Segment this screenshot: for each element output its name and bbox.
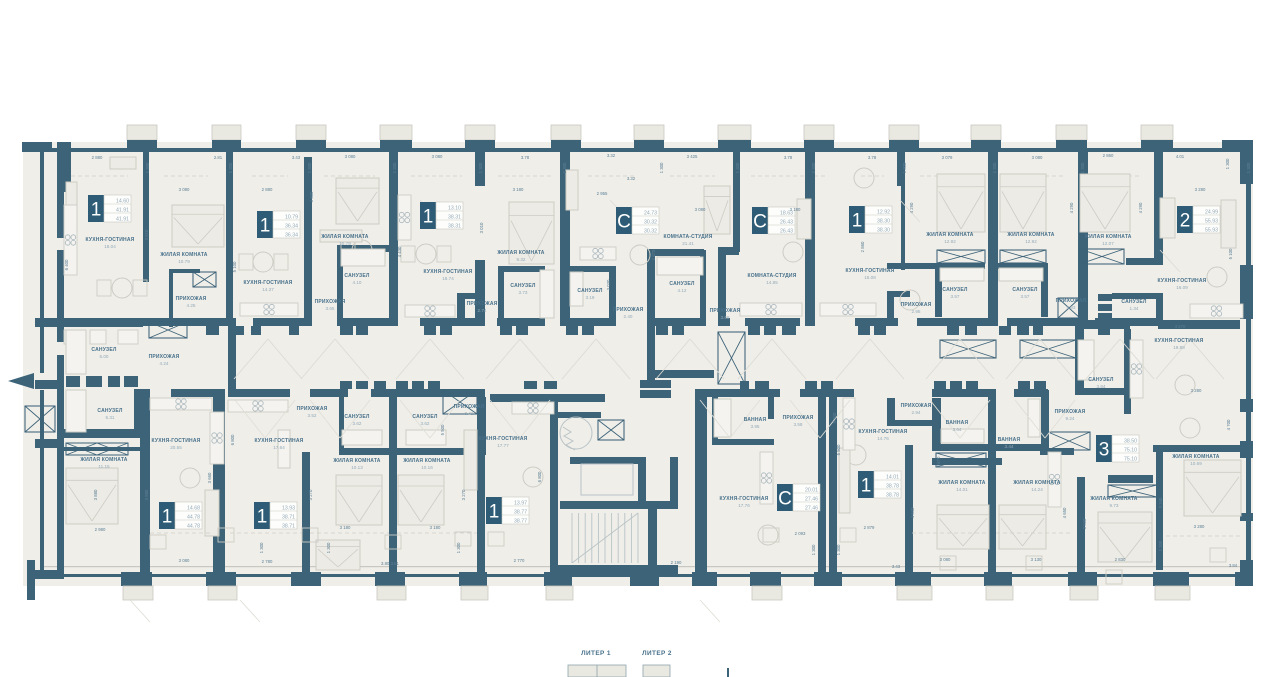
svg-text:3 080: 3 080 <box>1032 155 1043 160</box>
svg-text:ЖИЛАЯ КОМНАТА: ЖИЛАЯ КОМНАТА <box>1012 480 1060 486</box>
svg-text:1 300: 1 300 <box>659 162 664 173</box>
svg-text:3.68: 3.68 <box>721 315 730 320</box>
svg-text:ЖИЛАЯ КОМНАТА: ЖИЛАЯ КОМНАТА <box>332 458 380 464</box>
svg-text:4.01: 4.01 <box>1176 154 1185 159</box>
svg-text:1: 1 <box>861 476 872 497</box>
svg-text:2 980: 2 980 <box>95 527 106 532</box>
svg-text:2.81: 2.81 <box>214 155 223 160</box>
svg-text:1 300: 1 300 <box>456 542 461 553</box>
svg-text:2.94: 2.94 <box>912 410 921 415</box>
svg-text:5 500: 5 500 <box>440 424 445 435</box>
svg-text:2 780: 2 780 <box>262 559 273 564</box>
svg-text:4 290: 4 290 <box>909 202 914 213</box>
svg-text:КОМНАТА-СТУДИЯ: КОМНАТА-СТУДИЯ <box>663 234 712 240</box>
svg-text:13.97: 13.97 <box>514 500 527 506</box>
svg-text:3.44: 3.44 <box>1005 444 1014 449</box>
svg-text:4 270: 4 270 <box>1175 324 1186 329</box>
svg-text:24.99: 24.99 <box>1205 209 1218 215</box>
svg-text:С: С <box>753 212 767 233</box>
svg-text:18.74: 18.74 <box>442 276 454 281</box>
svg-text:3 080: 3 080 <box>345 154 356 159</box>
svg-text:1 300: 1 300 <box>326 542 331 553</box>
svg-text:3.78: 3.78 <box>784 155 793 160</box>
svg-text:5 500: 5 500 <box>832 412 837 423</box>
svg-text:36.34: 36.34 <box>285 223 298 229</box>
svg-text:41.91: 41.91 <box>116 207 129 213</box>
svg-text:3.62: 3.62 <box>421 421 430 426</box>
svg-text:2 770: 2 770 <box>514 558 525 563</box>
svg-text:20.55: 20.55 <box>170 445 182 450</box>
svg-text:38.71: 38.71 <box>282 514 295 520</box>
svg-text:САНУЗЕЛ: САНУЗЕЛ <box>669 281 694 287</box>
svg-text:2 880: 2 880 <box>92 155 103 160</box>
svg-text:19.88: 19.88 <box>1173 345 1185 350</box>
svg-text:36.34: 36.34 <box>285 232 298 238</box>
svg-text:САНУЗЕЛ: САНУЗЕЛ <box>344 414 369 420</box>
svg-text:ПРИХОЖАЯ: ПРИХОЖАЯ <box>149 354 180 360</box>
svg-text:2.95: 2.95 <box>912 309 921 314</box>
svg-text:КОМНАТА-СТУДИЯ: КОМНАТА-СТУДИЯ <box>747 273 796 279</box>
svg-text:2 879: 2 879 <box>864 525 875 530</box>
svg-text:3.73: 3.73 <box>519 290 528 295</box>
svg-text:3.32: 3.32 <box>627 176 636 181</box>
svg-text:27.46: 27.46 <box>805 505 818 511</box>
svg-text:ПРИХОЖАЯ: ПРИХОЖАЯ <box>1055 409 1086 415</box>
svg-text:3 080: 3 080 <box>940 557 951 562</box>
svg-text:38.77: 38.77 <box>514 509 527 515</box>
svg-text:2 955: 2 955 <box>597 191 608 196</box>
svg-text:3 010: 3 010 <box>479 222 484 233</box>
svg-text:ЖИЛАЯ КОМНАТА: ЖИЛАЯ КОМНАТА <box>320 234 368 240</box>
svg-text:3.41: 3.41 <box>465 411 474 416</box>
svg-text:3.57: 3.57 <box>1021 294 1030 299</box>
svg-text:5 100: 5 100 <box>232 261 237 272</box>
svg-text:1 300: 1 300 <box>811 544 816 555</box>
svg-text:3 080: 3 080 <box>695 207 706 212</box>
svg-text:1: 1 <box>852 211 863 232</box>
svg-text:1 300: 1 300 <box>562 162 567 173</box>
svg-text:ПРИХОЖАЯ: ПРИХОЖАЯ <box>710 308 741 314</box>
svg-text:КУХНЯ-ГОСТИНАЯ: КУХНЯ-ГОСТИНАЯ <box>152 438 201 444</box>
svg-text:3 880: 3 880 <box>93 489 98 500</box>
svg-text:САНУЗЕЛ: САНУЗЕЛ <box>1121 299 1146 305</box>
svg-text:4 650: 4 650 <box>1062 507 1067 518</box>
svg-text:1 300: 1 300 <box>392 162 397 173</box>
svg-text:ПРИХОЖАЯ: ПРИХОЖАЯ <box>467 301 498 307</box>
svg-text:14.60: 14.60 <box>116 198 129 204</box>
svg-text:3.65: 3.65 <box>326 306 335 311</box>
svg-text:ЖИЛАЯ КОМНАТА: ЖИЛАЯ КОМНАТА <box>937 480 985 486</box>
svg-text:1 300: 1 300 <box>478 162 483 173</box>
svg-text:38.30: 38.30 <box>877 218 890 224</box>
svg-text:11.15: 11.15 <box>98 464 110 469</box>
svg-text:12.92: 12.92 <box>877 209 890 215</box>
svg-text:1 300: 1 300 <box>145 162 150 173</box>
svg-text:КУХНЯ-ГОСТИНАЯ: КУХНЯ-ГОСТИНАЯ <box>846 268 895 274</box>
svg-text:3.58: 3.58 <box>794 422 803 427</box>
svg-text:3 280: 3 280 <box>1194 524 1205 529</box>
svg-text:21.41: 21.41 <box>682 241 694 246</box>
svg-text:САНУЗЕЛ: САНУЗЕЛ <box>91 347 116 353</box>
svg-text:ПРИХОЖАЯ: ПРИХОЖАЯ <box>613 307 644 313</box>
svg-text:С: С <box>617 212 631 233</box>
svg-text:3 180: 3 180 <box>790 207 801 212</box>
svg-text:14.76: 14.76 <box>877 436 889 441</box>
svg-text:3 530: 3 530 <box>1082 518 1087 529</box>
svg-text:КУХНЯ-ГОСТИНАЯ: КУХНЯ-ГОСТИНАЯ <box>424 269 473 275</box>
svg-text:6 400: 6 400 <box>64 259 69 270</box>
svg-text:30.32: 30.32 <box>644 228 657 234</box>
svg-text:38.77: 38.77 <box>514 518 527 524</box>
svg-text:2 670: 2 670 <box>651 249 656 260</box>
svg-text:55.93: 55.93 <box>1205 227 1218 233</box>
svg-text:ПРИХОЖАЯ: ПРИХОЖАЯ <box>901 302 932 308</box>
svg-text:3 130: 3 130 <box>1031 557 1042 562</box>
svg-text:1: 1 <box>423 207 434 228</box>
svg-text:4 700: 4 700 <box>1226 419 1231 430</box>
svg-text:КУХНЯ-ГОСТИНАЯ: КУХНЯ-ГОСТИНАЯ <box>479 436 528 442</box>
svg-text:3 280: 3 280 <box>1191 388 1202 393</box>
svg-text:3 080: 3 080 <box>432 154 443 159</box>
svg-text:1.34: 1.34 <box>1130 306 1139 311</box>
svg-text:КУХНЯ-ГОСТИНАЯ: КУХНЯ-ГОСТИНАЯ <box>1158 278 1207 284</box>
svg-text:1 300: 1 300 <box>735 162 740 173</box>
svg-text:ЛИТЕР 2: ЛИТЕР 2 <box>642 650 672 657</box>
svg-text:ЖИЛАЯ КОМНАТА: ЖИЛАЯ КОМНАТА <box>496 250 544 256</box>
svg-text:3 340: 3 340 <box>1158 497 1163 508</box>
svg-text:38.50: 38.50 <box>1124 438 1137 444</box>
svg-text:55.93: 55.93 <box>1205 218 1218 224</box>
svg-text:САНУЗЕЛ: САНУЗЕЛ <box>1012 287 1037 293</box>
svg-text:С: С <box>778 489 792 510</box>
svg-text:4.24: 4.24 <box>160 361 169 366</box>
svg-text:26.43: 26.43 <box>780 228 793 234</box>
svg-text:4 870: 4 870 <box>936 456 941 467</box>
svg-text:38.71: 38.71 <box>282 523 295 529</box>
svg-text:4 640: 4 640 <box>910 507 915 518</box>
svg-text:75.10: 75.10 <box>1124 447 1137 453</box>
svg-text:4.12: 4.12 <box>678 288 687 293</box>
svg-text:1: 1 <box>257 507 268 528</box>
svg-text:3 270: 3 270 <box>308 489 313 500</box>
svg-text:ПРИХОЖАЯ: ПРИХОЖАЯ <box>901 403 932 409</box>
svg-text:14.68: 14.68 <box>187 505 200 511</box>
svg-text:6 800: 6 800 <box>230 434 235 445</box>
svg-text:10.13: 10.13 <box>351 465 363 470</box>
svg-text:ПРИХОЖАЯ: ПРИХОЖАЯ <box>315 299 346 305</box>
svg-text:1 300: 1 300 <box>992 162 997 173</box>
svg-text:3.19: 3.19 <box>586 295 595 300</box>
svg-text:5.31: 5.31 <box>106 415 115 420</box>
svg-text:1 300: 1 300 <box>228 162 233 173</box>
svg-text:3.43: 3.43 <box>292 155 301 160</box>
svg-text:ВАННАЯ: ВАННАЯ <box>998 437 1021 443</box>
svg-text:12.07: 12.07 <box>1102 241 1114 246</box>
svg-text:1: 1 <box>91 200 102 221</box>
svg-text:1 300: 1 300 <box>1225 158 1230 169</box>
svg-text:3 600: 3 600 <box>309 191 314 202</box>
svg-text:3 180: 3 180 <box>430 525 441 530</box>
svg-text:1: 1 <box>162 507 173 528</box>
svg-text:3 030: 3 030 <box>606 279 611 290</box>
svg-text:38.78: 38.78 <box>886 492 899 498</box>
svg-text:14.01: 14.01 <box>956 487 968 492</box>
svg-text:14.37: 14.37 <box>262 287 274 292</box>
svg-text:3.95: 3.95 <box>751 424 760 429</box>
svg-text:3 270: 3 270 <box>461 489 466 500</box>
svg-text:3 080: 3 080 <box>179 187 190 192</box>
svg-text:ЖИЛАЯ КОМНАТА: ЖИЛАЯ КОМНАТА <box>1089 496 1137 502</box>
svg-text:3 180: 3 180 <box>340 525 351 530</box>
svg-text:5 500: 5 500 <box>836 444 841 455</box>
svg-text:9.24: 9.24 <box>1066 416 1075 421</box>
svg-text:ПРИХОЖАЯ: ПРИХОЖАЯ <box>783 415 814 421</box>
svg-text:ВАННАЯ: ВАННАЯ <box>744 417 767 423</box>
svg-text:24.73: 24.73 <box>644 210 657 216</box>
svg-text:2: 2 <box>1180 211 1191 232</box>
svg-text:3 880: 3 880 <box>144 489 149 500</box>
svg-text:3.64: 3.64 <box>953 427 962 432</box>
svg-text:1 300: 1 300 <box>307 162 312 173</box>
svg-text:3.43: 3.43 <box>892 564 901 569</box>
svg-text:2 093: 2 093 <box>795 531 806 536</box>
svg-text:1 300: 1 300 <box>1246 162 1251 173</box>
svg-text:4 290: 4 290 <box>1138 202 1143 213</box>
svg-text:18.04: 18.04 <box>104 244 116 249</box>
svg-text:3.80 3.81: 3.80 3.81 <box>381 561 400 566</box>
svg-text:3 079: 3 079 <box>942 155 953 160</box>
svg-text:2 860: 2 860 <box>1103 153 1114 158</box>
svg-text:ВАННАЯ: ВАННАЯ <box>946 420 969 426</box>
svg-text:3.52: 3.52 <box>308 413 317 418</box>
svg-text:17.64: 17.64 <box>273 445 285 450</box>
svg-text:16.09: 16.09 <box>1176 285 1188 290</box>
svg-text:КУХНЯ-ГОСТИНАЯ: КУХНЯ-ГОСТИНАЯ <box>255 438 304 444</box>
svg-text:КУХНЯ-ГОСТИНАЯ: КУХНЯ-ГОСТИНАЯ <box>244 280 293 286</box>
svg-text:3.84: 3.84 <box>1229 563 1238 568</box>
svg-text:2 830: 2 830 <box>1115 557 1126 562</box>
svg-text:1 300: 1 300 <box>902 162 907 173</box>
svg-text:5.00: 5.00 <box>100 354 109 359</box>
svg-text:ЖИЛАЯ КОМНАТА: ЖИЛАЯ КОМНАТА <box>402 458 450 464</box>
svg-text:38.31: 38.31 <box>448 223 461 229</box>
svg-text:ПРИХОЖАЯ: ПРИХОЖАЯ <box>297 406 328 412</box>
svg-text:ПРИХОЖАЯ: ПРИХОЖАЯ <box>1056 298 1087 304</box>
svg-text:3 810: 3 810 <box>144 229 149 240</box>
svg-text:САНУЗЕЛ: САНУЗЕЛ <box>942 287 967 293</box>
svg-text:САНУЗЕЛ: САНУЗЕЛ <box>510 283 535 289</box>
svg-text:14.85: 14.85 <box>766 280 778 285</box>
svg-text:3.32: 3.32 <box>607 153 616 158</box>
svg-text:38.78: 38.78 <box>886 483 899 489</box>
svg-text:1 300: 1 300 <box>1080 162 1085 173</box>
svg-text:44.78: 44.78 <box>187 514 200 520</box>
svg-text:4.10: 4.10 <box>353 280 362 285</box>
svg-text:41.91: 41.91 <box>116 216 129 222</box>
svg-text:2 190: 2 190 <box>671 560 682 565</box>
svg-text:1 300: 1 300 <box>811 162 816 173</box>
svg-text:ЖИЛАЯ КОМНАТА: ЖИЛАЯ КОМНАТА <box>925 232 973 238</box>
svg-text:30.32: 30.32 <box>644 219 657 225</box>
svg-text:ЖИЛАЯ КОМНАТА: ЖИЛАЯ КОМНАТА <box>1006 232 1054 238</box>
svg-text:САНУЗЕЛ: САНУЗЕЛ <box>1088 377 1113 383</box>
svg-text:3.57: 3.57 <box>951 294 960 299</box>
svg-text:5.93: 5.93 <box>1067 305 1076 310</box>
svg-text:6 800: 6 800 <box>537 471 542 482</box>
svg-text:1 300: 1 300 <box>1158 540 1163 551</box>
svg-text:ЖИЛАЯ КОМНАТА: ЖИЛАЯ КОМНАТА <box>1083 234 1131 240</box>
svg-text:КУХНЯ-ГОСТИНАЯ: КУХНЯ-ГОСТИНАЯ <box>859 429 908 435</box>
svg-text:3 080: 3 080 <box>179 558 190 563</box>
svg-text:3.78: 3.78 <box>868 155 877 160</box>
svg-text:14.01: 14.01 <box>886 474 899 480</box>
svg-text:10.16: 10.16 <box>421 465 433 470</box>
svg-text:ПРИХОЖАЯ: ПРИХОЖАЯ <box>454 404 485 410</box>
svg-text:ЛИТЕР 1: ЛИТЕР 1 <box>581 650 611 657</box>
svg-text:3.84: 3.84 <box>1097 384 1106 389</box>
svg-text:12.92: 12.92 <box>1025 239 1037 244</box>
svg-text:38.30: 38.30 <box>877 227 890 233</box>
svg-text:4 290: 4 290 <box>1069 202 1074 213</box>
svg-text:1 300: 1 300 <box>259 542 264 553</box>
svg-text:10.69: 10.69 <box>1190 461 1202 466</box>
svg-text:2.40: 2.40 <box>624 314 633 319</box>
svg-text:2.74: 2.74 <box>478 308 487 313</box>
svg-text:17.77: 17.77 <box>497 443 509 448</box>
svg-text:17.76: 17.76 <box>738 503 750 508</box>
svg-text:САНУЗЕЛ: САНУЗЕЛ <box>97 408 122 414</box>
svg-text:2 880: 2 880 <box>262 187 273 192</box>
svg-text:1: 1 <box>260 216 271 237</box>
svg-text:ЖИЛАЯ КОМНАТА: ЖИЛАЯ КОМНАТА <box>159 252 207 258</box>
svg-text:САНУЗЕЛ: САНУЗЕЛ <box>412 414 437 420</box>
svg-text:14.24: 14.24 <box>1031 487 1043 492</box>
svg-text:ПРИХОЖАЯ: ПРИХОЖАЯ <box>176 296 207 302</box>
svg-text:10.79: 10.79 <box>178 259 190 264</box>
svg-text:ЖИЛАЯ КОМНАТА: ЖИЛАЯ КОМНАТА <box>79 457 127 463</box>
svg-text:10.79: 10.79 <box>339 241 351 246</box>
svg-text:26.43: 26.43 <box>780 219 793 225</box>
svg-text:13.10: 13.10 <box>448 205 461 211</box>
svg-text:ЖИЛАЯ КОМНАТА: ЖИЛАЯ КОМНАТА <box>1171 454 1219 460</box>
svg-text:2 860: 2 860 <box>860 241 865 252</box>
svg-text:САНУЗЕЛ: САНУЗЕЛ <box>577 288 602 294</box>
svg-text:3.62: 3.62 <box>353 421 362 426</box>
svg-text:9.73: 9.73 <box>1110 503 1119 508</box>
svg-text:КУХНЯ-ГОСТИНАЯ: КУХНЯ-ГОСТИНАЯ <box>720 496 769 502</box>
svg-text:3 660: 3 660 <box>207 472 212 483</box>
svg-text:3.78: 3.78 <box>521 155 530 160</box>
svg-text:10.79: 10.79 <box>285 214 298 220</box>
svg-text:КУХНЯ-ГОСТИНАЯ: КУХНЯ-ГОСТИНАЯ <box>1155 338 1204 344</box>
svg-text:13.93: 13.93 <box>282 505 295 511</box>
svg-text:44.78: 44.78 <box>187 523 200 529</box>
svg-text:3 280: 3 280 <box>1195 187 1206 192</box>
svg-text:САНУЗЕЛ: САНУЗЕЛ <box>344 273 369 279</box>
svg-text:75.10: 75.10 <box>1124 456 1137 462</box>
svg-text:1: 1 <box>489 502 500 523</box>
svg-text:15.08: 15.08 <box>864 275 876 280</box>
svg-text:КУХНЯ-ГОСТИНАЯ: КУХНЯ-ГОСТИНАЯ <box>86 237 135 243</box>
svg-text:5 100: 5 100 <box>1228 248 1233 259</box>
svg-text:20.01: 20.01 <box>805 487 818 493</box>
svg-text:3: 3 <box>1099 440 1110 461</box>
svg-text:12.92: 12.92 <box>944 239 956 244</box>
svg-text:9.32: 9.32 <box>517 257 526 262</box>
svg-text:3 425: 3 425 <box>687 154 698 159</box>
svg-text:4.25: 4.25 <box>187 303 196 308</box>
svg-text:38.31: 38.31 <box>448 214 461 220</box>
svg-text:3 180: 3 180 <box>513 187 524 192</box>
svg-text:4 430: 4 430 <box>397 246 402 257</box>
svg-text:27.46: 27.46 <box>805 496 818 502</box>
svg-text:1 300: 1 300 <box>836 544 841 555</box>
